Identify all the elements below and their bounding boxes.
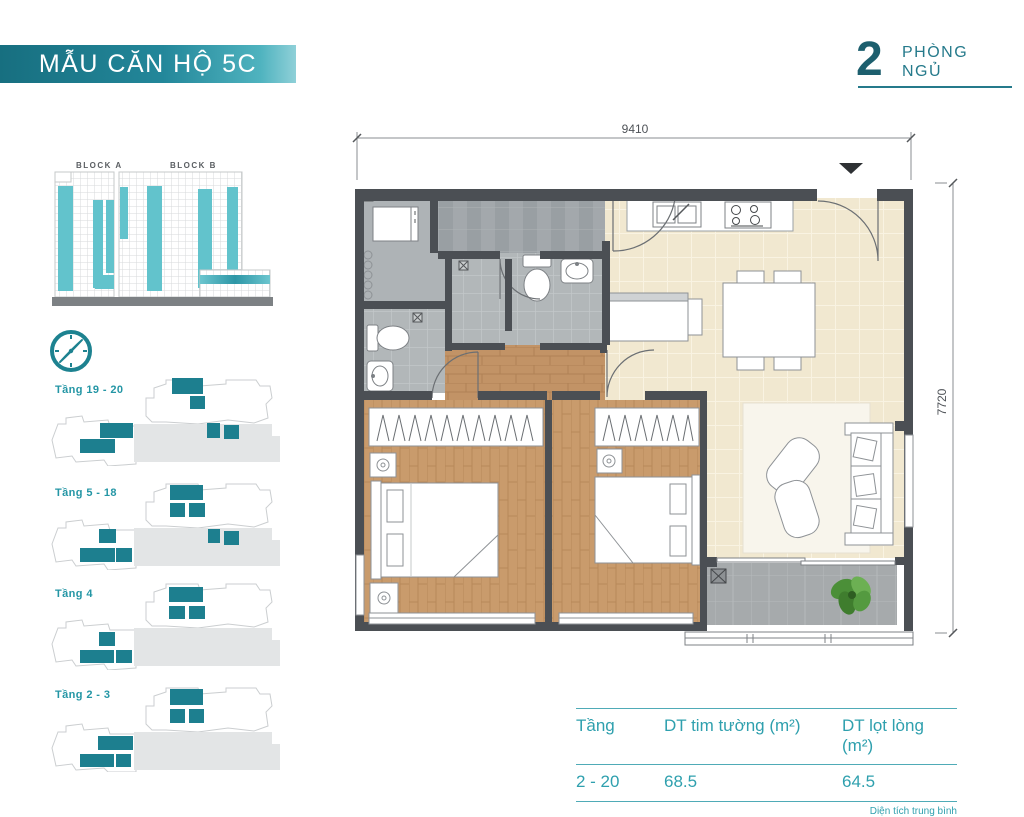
balcony-drain [711, 569, 726, 583]
brochure-page: { "header": { "title": "MẪU CĂN HỘ 5C" }… [0, 0, 1024, 786]
floor-thumbnail-4 [48, 582, 298, 670]
toilet-1 [523, 255, 551, 301]
bed-1 [371, 481, 498, 579]
stove [725, 202, 771, 228]
floor-thumbnail-2-3 [48, 682, 298, 772]
entry-hall-floor [430, 198, 605, 253]
nightstand-1b [370, 583, 398, 613]
col-header-floor: Tầng [576, 716, 664, 736]
table-header-row: Tầng DT tim tường (m²) DT lọt lòng (m²) [576, 708, 957, 765]
dimension-height-value: 7720 [935, 372, 949, 432]
dimension-width-value: 9410 [570, 122, 700, 136]
table-data-row: 2 - 20 68.5 64.5 [576, 765, 957, 802]
compass-icon [48, 328, 94, 374]
kitchen-counter [627, 198, 793, 231]
toilet-2 [367, 325, 409, 351]
area-spec-table: Tầng DT tim tường (m²) DT lọt lòng (m²) … [576, 708, 957, 817]
washing-machine [373, 207, 418, 241]
floor-drain-2 [459, 261, 468, 270]
console-cabinet [608, 293, 702, 341]
bedroom-count: 2 [856, 36, 883, 84]
nightstand-2 [597, 449, 622, 473]
col-header-net-area: DT lọt lòng (m²) [842, 716, 957, 756]
balcony-railing [685, 632, 913, 645]
bedroom-label-line2: NGỦ [902, 63, 942, 81]
wardrobe-2 [595, 408, 699, 446]
bed-2 [595, 475, 700, 565]
apartment-floorplan [355, 185, 915, 660]
page-title: MẪU CĂN HỘ 5C [39, 50, 257, 79]
floor-thumbnail-19-20 [48, 378, 298, 466]
wardrobe-1 [369, 408, 543, 446]
col-header-gross-area: DT tim tường (m²) [664, 716, 842, 736]
bedroom-label-line1: PHÒNG [902, 44, 968, 62]
sofa [845, 423, 893, 545]
bedroom-underline [858, 86, 1012, 88]
cell-floor-range: 2 - 20 [576, 772, 664, 792]
cell-net-area: 64.5 [842, 772, 957, 792]
cell-gross-area: 68.5 [664, 772, 842, 792]
sink-1 [561, 259, 593, 283]
nightstand-1a [370, 453, 396, 477]
dining-table-set [723, 271, 815, 370]
table-footnote: Diện tích trung bình [576, 802, 957, 817]
building-elevation-diagram [45, 150, 280, 310]
sink-2 [367, 361, 393, 391]
title-banner: MẪU CĂN HỘ 5C [0, 45, 296, 83]
floor-thumbnail-5-18 [48, 482, 298, 570]
floor-drain-3 [413, 313, 422, 322]
entrance-arrow-icon [839, 163, 863, 174]
